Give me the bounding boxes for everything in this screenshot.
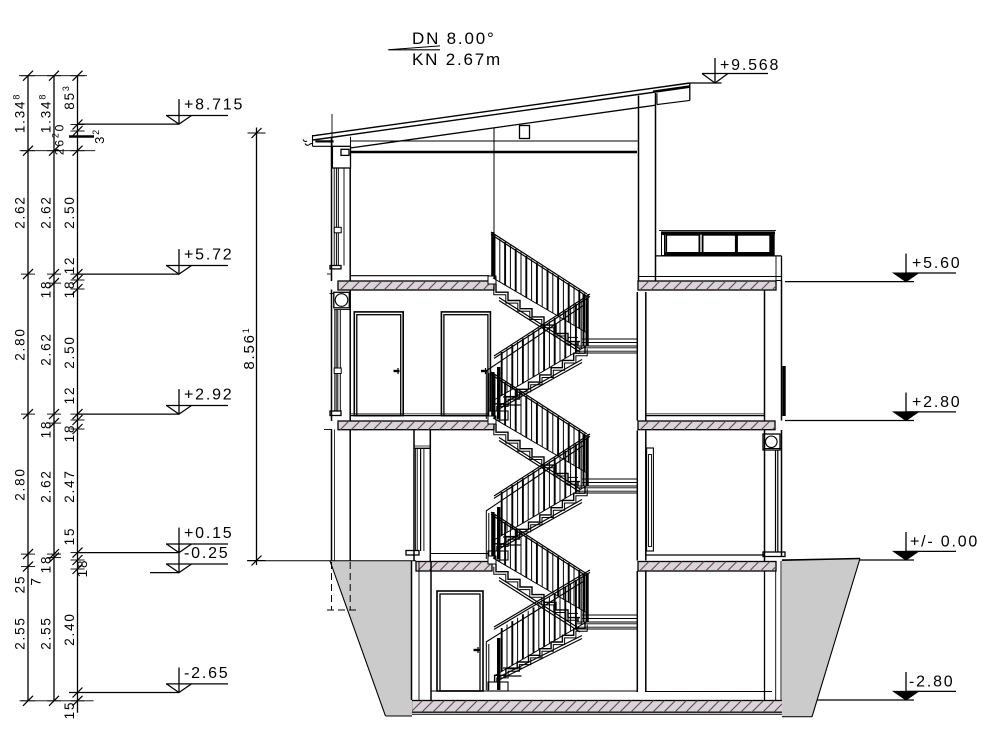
svg-text:2.50: 2.50 [62,335,77,368]
svg-text:2.62: 2.62 [39,332,54,365]
svg-text:25: 25 [13,575,28,594]
svg-text:+8.715: +8.715 [184,97,244,114]
svg-text:-0.25: -0.25 [184,545,229,562]
svg-text:7: 7 [29,576,44,585]
svg-text:+9.568: +9.568 [720,57,780,74]
svg-text:2.62: 2.62 [13,195,28,228]
svg-text:-2.65: -2.65 [184,665,229,682]
svg-text:2.55: 2.55 [39,616,54,649]
svg-text:2.50: 2.50 [62,195,77,228]
svg-text:KN 2.67m: KN 2.67m [412,50,502,69]
svg-text:+2.92: +2.92 [184,387,233,404]
svg-text:2620: 2620 [51,123,67,155]
svg-text:2.80: 2.80 [13,467,28,500]
svg-text:18: 18 [75,559,90,578]
svg-text:18: 18 [62,280,77,299]
svg-text:+/- 0.00: +/- 0.00 [910,534,979,551]
svg-text:-2.80: -2.80 [909,674,954,691]
svg-text:+5.60: +5.60 [912,255,961,272]
svg-text:18: 18 [62,424,77,443]
svg-text:18: 18 [39,555,54,574]
svg-text:+0.15: +0.15 [184,525,233,542]
svg-text:+2.80: +2.80 [912,394,961,411]
svg-text:2.62: 2.62 [39,195,54,228]
svg-text:2.47: 2.47 [62,469,77,502]
svg-text:18: 18 [39,420,54,439]
svg-text:2.80: 2.80 [13,327,28,360]
svg-text:2.62: 2.62 [39,469,54,502]
svg-text:12: 12 [62,256,77,275]
svg-text:2.40: 2.40 [62,612,77,645]
svg-text:15: 15 [62,701,77,720]
svg-text:DN 8.00°: DN 8.00° [412,29,496,48]
svg-text:2.55: 2.55 [13,616,28,649]
svg-text:18: 18 [39,280,54,299]
svg-text:+5.72: +5.72 [184,247,233,264]
svg-text:12: 12 [62,386,77,405]
svg-text:15: 15 [62,527,77,546]
